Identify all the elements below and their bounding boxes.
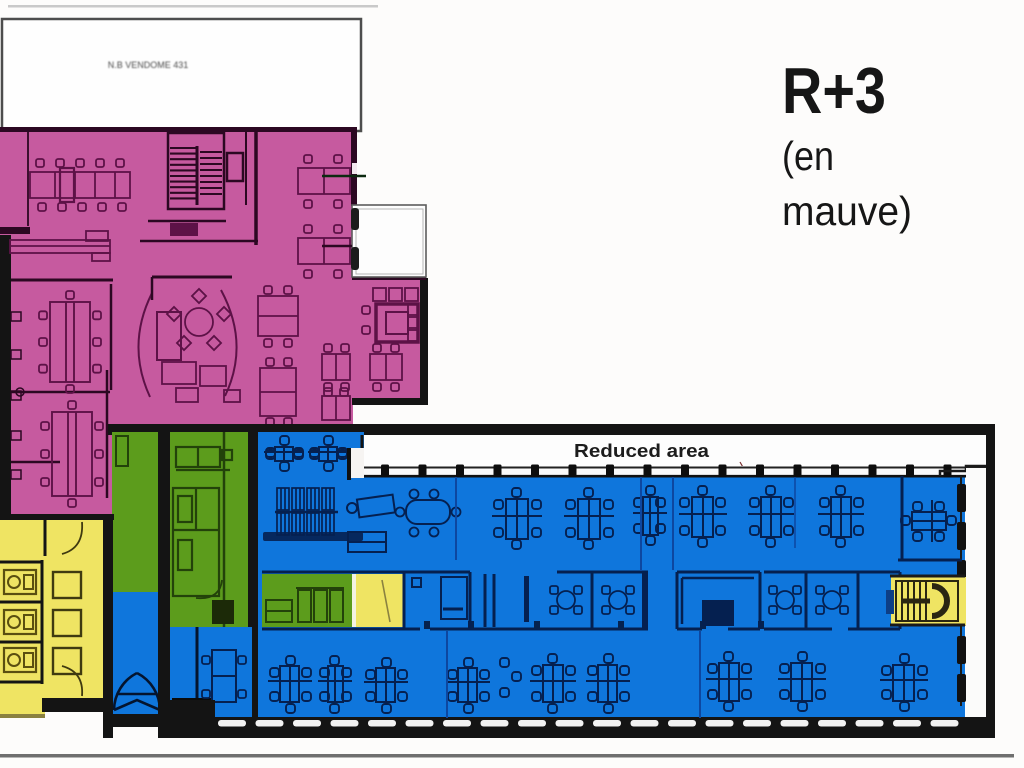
svg-text:N.B VENDOME 431: N.B VENDOME 431 (108, 60, 189, 70)
svg-text:mauve): mauve) (782, 188, 912, 234)
svg-text:Reduced area: Reduced area (574, 441, 710, 461)
svg-text:(en: (en (782, 133, 834, 179)
svg-text:R+3: R+3 (782, 54, 886, 127)
